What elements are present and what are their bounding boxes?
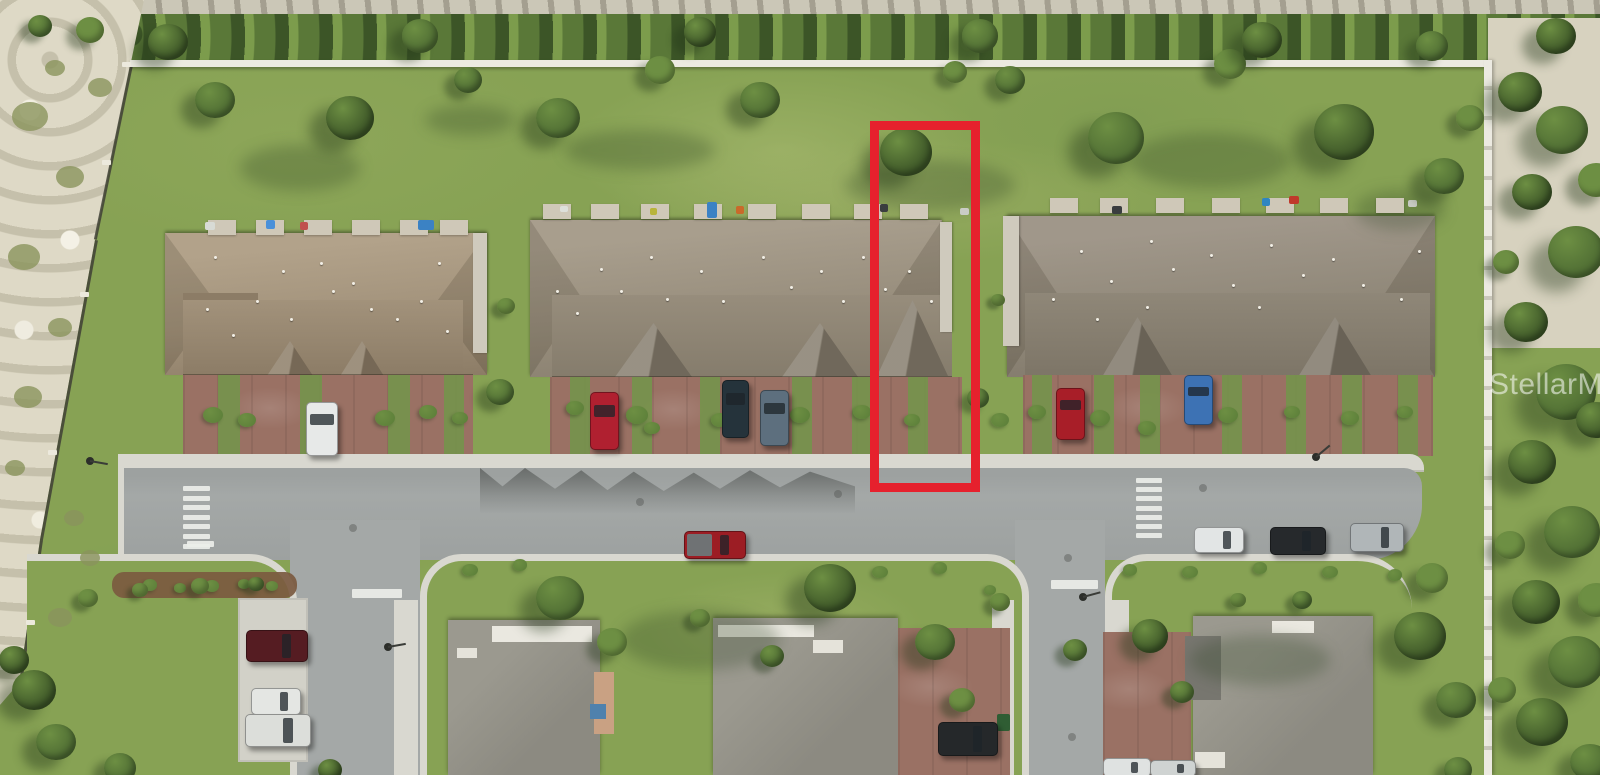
white-car-road xyxy=(1194,527,1244,553)
tree xyxy=(454,67,482,93)
tree xyxy=(1488,677,1516,703)
tree xyxy=(597,628,627,656)
crosswalk-stripe xyxy=(183,496,210,501)
scrub-patch xyxy=(56,166,84,188)
rear-patio-pad xyxy=(304,220,332,235)
windshield xyxy=(1302,531,1311,551)
patio-item xyxy=(1408,200,1417,207)
grass-shade-patch xyxy=(565,130,715,170)
front-shrub xyxy=(375,410,395,426)
front-shrub xyxy=(419,405,437,419)
tree xyxy=(78,589,98,607)
tree xyxy=(949,688,975,712)
windshield xyxy=(1131,762,1138,773)
windshield xyxy=(1188,387,1209,397)
tree xyxy=(536,98,580,138)
tree xyxy=(1132,619,1168,652)
grass-shade-patch xyxy=(1190,635,1330,685)
tree xyxy=(1456,105,1484,131)
patio-item xyxy=(266,220,275,229)
rear-patio-pad xyxy=(352,220,380,235)
roof-vent xyxy=(438,262,441,265)
patio-item xyxy=(418,220,434,230)
white-car-left-driveway xyxy=(306,402,338,456)
tree xyxy=(318,759,342,775)
roof-vent xyxy=(820,270,823,273)
tree xyxy=(690,609,710,627)
blue-car-right-driveway xyxy=(1184,375,1213,425)
tree xyxy=(1548,226,1600,278)
patio-item xyxy=(707,202,717,218)
roof-vent xyxy=(256,300,259,303)
scrub-patch xyxy=(48,608,72,627)
roof-vent xyxy=(1258,306,1261,309)
crosswalk-stripe xyxy=(1136,515,1162,520)
manhole-cover xyxy=(1064,554,1072,562)
tree xyxy=(76,17,104,43)
roof-vent xyxy=(1210,254,1213,257)
roof-vent xyxy=(762,256,765,259)
scrub-patch xyxy=(64,510,84,526)
tree xyxy=(248,577,264,592)
crosswalk-stripe xyxy=(1136,478,1162,483)
tree xyxy=(36,724,76,761)
rear-patio-pad xyxy=(748,204,776,219)
scrub-patch xyxy=(5,460,25,476)
front-shrub xyxy=(452,412,468,425)
roof-vent xyxy=(1332,258,1335,261)
tree xyxy=(1504,302,1548,342)
tree xyxy=(915,624,955,661)
front-shrub xyxy=(1397,406,1413,419)
tree xyxy=(497,298,515,315)
patio-item xyxy=(560,206,568,212)
fence-post-cap xyxy=(80,292,89,297)
tree xyxy=(1508,440,1556,484)
roof-vent xyxy=(1232,284,1235,287)
roof-vent xyxy=(1080,250,1083,253)
roof-vent xyxy=(862,256,865,259)
tree xyxy=(995,66,1025,94)
fence-post-cap xyxy=(48,450,57,455)
tree xyxy=(326,96,374,140)
dark-car-center-driveway xyxy=(722,380,749,438)
tree xyxy=(486,379,514,405)
rear-patio-pad xyxy=(1376,198,1404,213)
scrub-patch xyxy=(48,318,72,337)
tree xyxy=(1444,757,1472,775)
tree xyxy=(148,24,188,61)
tree xyxy=(1578,163,1600,196)
front-shrub xyxy=(790,407,810,423)
stop-bar xyxy=(352,589,402,598)
roof-vent xyxy=(1146,306,1149,309)
front-shrub xyxy=(872,566,888,579)
scrub-patch xyxy=(8,244,40,270)
roof-vent xyxy=(556,290,559,293)
tree xyxy=(1292,591,1312,609)
roof-vent xyxy=(396,318,399,321)
rear-patio-pad xyxy=(802,204,830,219)
tree xyxy=(1242,22,1282,59)
stop-bar xyxy=(187,541,214,547)
scrub-patch xyxy=(12,102,48,131)
patio-item xyxy=(1289,196,1299,204)
scrub-patch xyxy=(45,60,65,76)
stop-bar xyxy=(1051,580,1098,589)
front-shrub xyxy=(1028,405,1046,419)
fence-post-cap xyxy=(102,160,111,165)
tree xyxy=(990,593,1010,611)
crosswalk-stripe xyxy=(183,515,210,520)
tree xyxy=(1314,104,1374,159)
rear-patio-pad xyxy=(591,204,619,219)
tree xyxy=(1063,639,1087,661)
front-shrub xyxy=(1322,566,1338,579)
roof-vent xyxy=(650,256,653,259)
windshield xyxy=(594,405,615,416)
red-car-right-driveway xyxy=(1056,388,1085,440)
tree xyxy=(962,19,998,52)
front-shrub xyxy=(853,405,871,419)
tree xyxy=(1498,72,1542,112)
front-shrub xyxy=(566,401,584,415)
dark-truck-bottom-driveway xyxy=(938,722,998,756)
roof-vent xyxy=(352,282,355,285)
front-shrub xyxy=(266,581,278,591)
manhole-cover xyxy=(349,524,357,532)
roof-vent xyxy=(290,318,293,321)
manhole-cover xyxy=(1199,484,1207,492)
roof-vent xyxy=(842,300,845,303)
tree xyxy=(1416,563,1448,592)
front-shrub xyxy=(238,413,256,427)
street-lamp-arm xyxy=(90,460,108,465)
tree xyxy=(684,17,716,46)
tree xyxy=(740,82,780,119)
stellar-mls-watermark: StellarMLS xyxy=(1489,368,1600,402)
front-shrub xyxy=(1253,562,1267,573)
front-shrub xyxy=(1123,564,1137,575)
tree xyxy=(804,564,856,612)
crosswalk-stripe xyxy=(183,505,210,510)
windshield xyxy=(310,414,334,424)
tree xyxy=(12,670,56,710)
manhole-cover xyxy=(636,498,644,506)
tree xyxy=(1512,580,1560,624)
roof-vent xyxy=(332,290,335,293)
scrub-patch xyxy=(88,78,112,97)
red-pickup-truck-road xyxy=(684,531,746,559)
white-car-bottom-edge-1 xyxy=(1103,758,1151,775)
patio-item xyxy=(650,208,657,215)
rear-patio-pad xyxy=(1320,198,1348,213)
front-shrub xyxy=(513,559,527,570)
rear-patio-pad xyxy=(1212,198,1240,213)
tree xyxy=(760,645,784,667)
tree xyxy=(1416,31,1448,60)
black-car-road xyxy=(1270,527,1326,555)
roof-vent xyxy=(1096,318,1099,321)
front-shrub xyxy=(626,406,648,424)
grass-shade-patch xyxy=(1130,133,1290,188)
tree xyxy=(1578,583,1600,616)
windshield xyxy=(720,535,730,555)
tree xyxy=(1548,636,1600,688)
front-shrub xyxy=(644,422,660,435)
front-shrub xyxy=(203,407,223,423)
roof-vent xyxy=(1172,268,1175,271)
tree xyxy=(1230,593,1246,608)
roof-vent xyxy=(232,334,235,337)
roof-vent xyxy=(320,262,323,265)
patio-item xyxy=(1262,198,1270,206)
crosswalk-stripe xyxy=(183,486,210,491)
highlight-box-red-outline xyxy=(870,121,980,492)
roof-vent xyxy=(370,308,373,311)
silver-car-road xyxy=(1350,523,1404,552)
front-shrub xyxy=(1090,410,1110,426)
roof-vent xyxy=(282,270,285,273)
roof-vent xyxy=(206,308,209,311)
front-shrub xyxy=(1182,566,1198,579)
tree xyxy=(195,82,235,119)
tree xyxy=(943,61,967,83)
crosswalk-stripe xyxy=(1136,524,1162,529)
crosswalk-stripe xyxy=(183,524,210,529)
roof-vent xyxy=(700,270,703,273)
front-shrub xyxy=(933,562,947,573)
scrub-patch xyxy=(80,550,100,566)
front-shrub xyxy=(174,583,186,593)
aerial-photo-stage: StellarMLS xyxy=(0,0,1600,775)
roof-vent xyxy=(576,312,579,315)
manhole-cover xyxy=(1068,733,1076,741)
patio-item xyxy=(1112,206,1122,214)
tree xyxy=(28,15,52,37)
rear-patio-pad xyxy=(1050,198,1078,213)
white-suv-parking xyxy=(245,714,311,747)
rear-patio-pad xyxy=(1156,198,1184,213)
tree xyxy=(1088,112,1144,164)
tree xyxy=(1394,612,1446,660)
roof-vent xyxy=(600,268,603,271)
tree xyxy=(645,56,675,84)
roof-vent xyxy=(1150,240,1153,243)
roof-vent xyxy=(446,330,449,333)
roof-vent xyxy=(1418,250,1421,253)
windshield xyxy=(764,403,785,414)
patio-item xyxy=(997,714,1010,731)
crosswalk-stripe xyxy=(183,534,210,539)
crosswalk-stripe xyxy=(1136,487,1162,492)
tree xyxy=(1170,681,1194,703)
tree xyxy=(1570,744,1600,775)
street-lamp-arm xyxy=(1083,591,1101,598)
front-shrub xyxy=(1138,421,1156,435)
roof-vent xyxy=(1270,244,1273,247)
white-car-bottom-edge-2 xyxy=(1150,760,1196,775)
tree xyxy=(1536,106,1588,154)
grass-shade-patch xyxy=(425,105,515,135)
truck-bed-cover xyxy=(687,534,712,556)
windshield xyxy=(1223,531,1231,549)
front-shrub xyxy=(1284,406,1300,419)
scrub-patch xyxy=(14,386,42,408)
windshield xyxy=(280,692,288,711)
white-car-parking xyxy=(251,688,301,715)
roof-vent xyxy=(1400,298,1403,301)
rear-patio-pad xyxy=(440,220,468,235)
slate-car-center-driveway xyxy=(760,390,789,446)
patio-item xyxy=(736,206,744,214)
fence-post-cap xyxy=(26,620,35,625)
fence-post-cap xyxy=(122,62,131,67)
windshield xyxy=(1060,400,1081,410)
tree xyxy=(191,578,209,595)
tree xyxy=(402,19,438,52)
windshield xyxy=(282,634,292,658)
tree xyxy=(1512,174,1552,211)
tree xyxy=(1214,49,1246,78)
tree xyxy=(0,646,29,674)
tree xyxy=(1536,18,1576,55)
crosswalk-stripe xyxy=(1136,533,1162,538)
roof-vent xyxy=(722,300,725,303)
front-shrub xyxy=(991,413,1009,427)
roof-vent xyxy=(420,300,423,303)
front-shrub xyxy=(1341,411,1359,425)
roof-vent xyxy=(790,286,793,289)
roof-vent xyxy=(620,290,623,293)
windshield xyxy=(1381,527,1389,548)
street-lamp-arm xyxy=(1315,445,1330,458)
tree xyxy=(104,753,136,775)
front-shrub xyxy=(1218,407,1238,423)
roof-vent xyxy=(1052,298,1055,301)
patio-item xyxy=(300,222,308,230)
tree xyxy=(1495,531,1525,559)
roof-vent xyxy=(1110,280,1113,283)
roof-vent xyxy=(666,298,669,301)
roof-vent xyxy=(1302,274,1305,277)
crosswalk-stripe xyxy=(1136,496,1162,501)
tree xyxy=(1424,158,1464,195)
windshield xyxy=(1177,764,1184,773)
front-shrub xyxy=(1388,569,1402,580)
maroon-suv-parking xyxy=(246,630,308,662)
tree xyxy=(1516,698,1568,746)
scene-objects-layer xyxy=(0,0,1600,775)
tree xyxy=(1493,250,1519,274)
patio-item xyxy=(205,222,215,230)
grass-shade-patch xyxy=(240,145,360,191)
tree xyxy=(132,583,148,598)
crosswalk-stripe xyxy=(1136,506,1162,511)
tree xyxy=(1544,506,1600,558)
roof-vent xyxy=(1362,284,1365,287)
windshield xyxy=(973,726,982,752)
tree xyxy=(991,294,1005,307)
windshield xyxy=(283,718,293,743)
tree xyxy=(1436,682,1476,719)
manhole-cover xyxy=(834,490,842,498)
roof-vent xyxy=(214,256,217,259)
red-car-center-driveway xyxy=(590,392,619,450)
front-shrub xyxy=(462,564,478,577)
windshield xyxy=(726,393,745,404)
tree xyxy=(536,576,584,620)
